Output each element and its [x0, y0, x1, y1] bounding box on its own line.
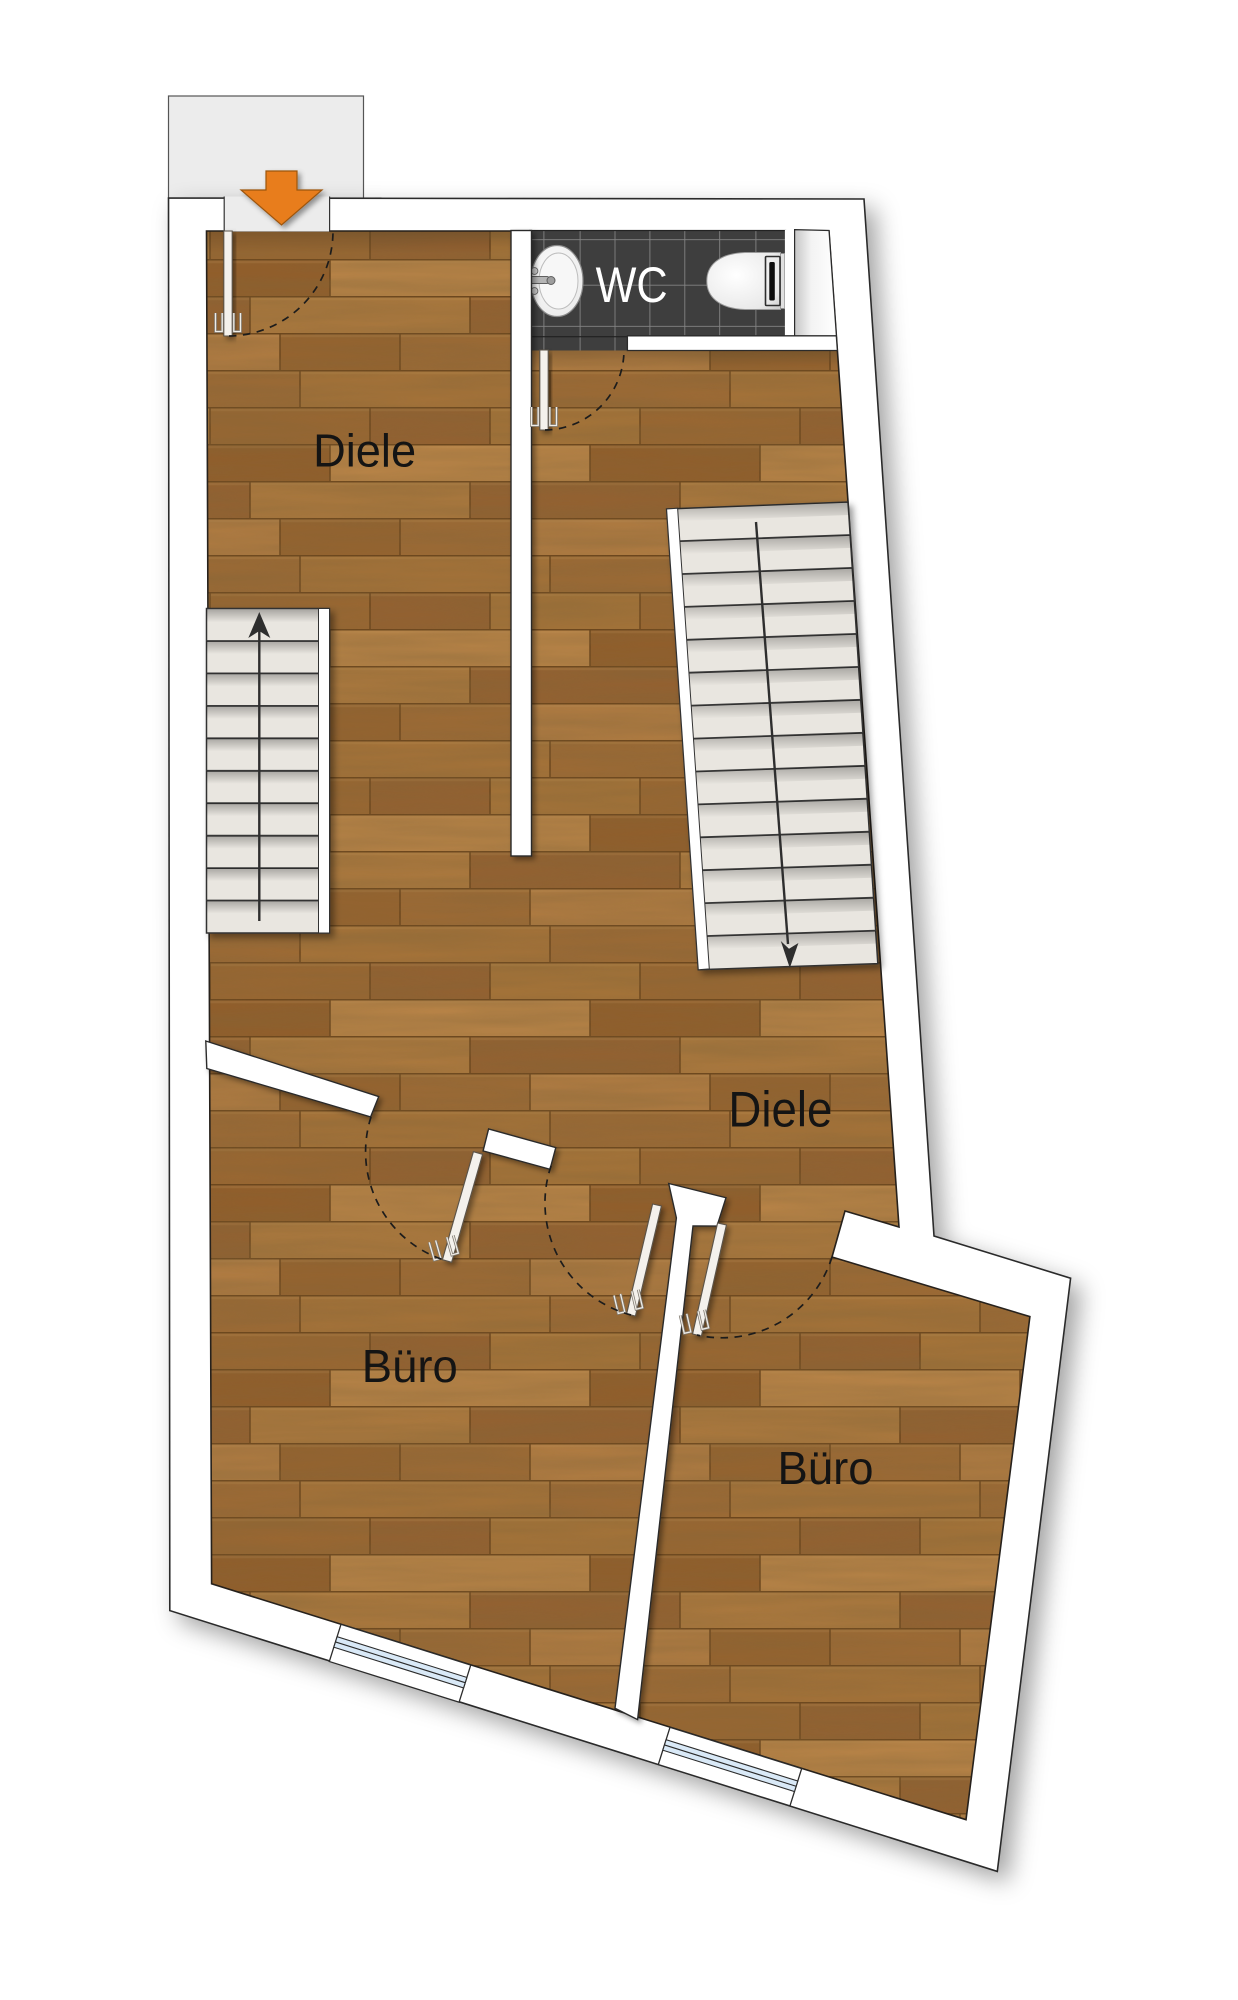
svg-text:Büro: Büro: [778, 1442, 874, 1494]
svg-text:Diele: Diele: [313, 425, 416, 477]
svg-text:WC: WC: [596, 257, 668, 313]
svg-text:Büro: Büro: [362, 1340, 458, 1392]
svg-text:Diele: Diele: [728, 1081, 832, 1137]
